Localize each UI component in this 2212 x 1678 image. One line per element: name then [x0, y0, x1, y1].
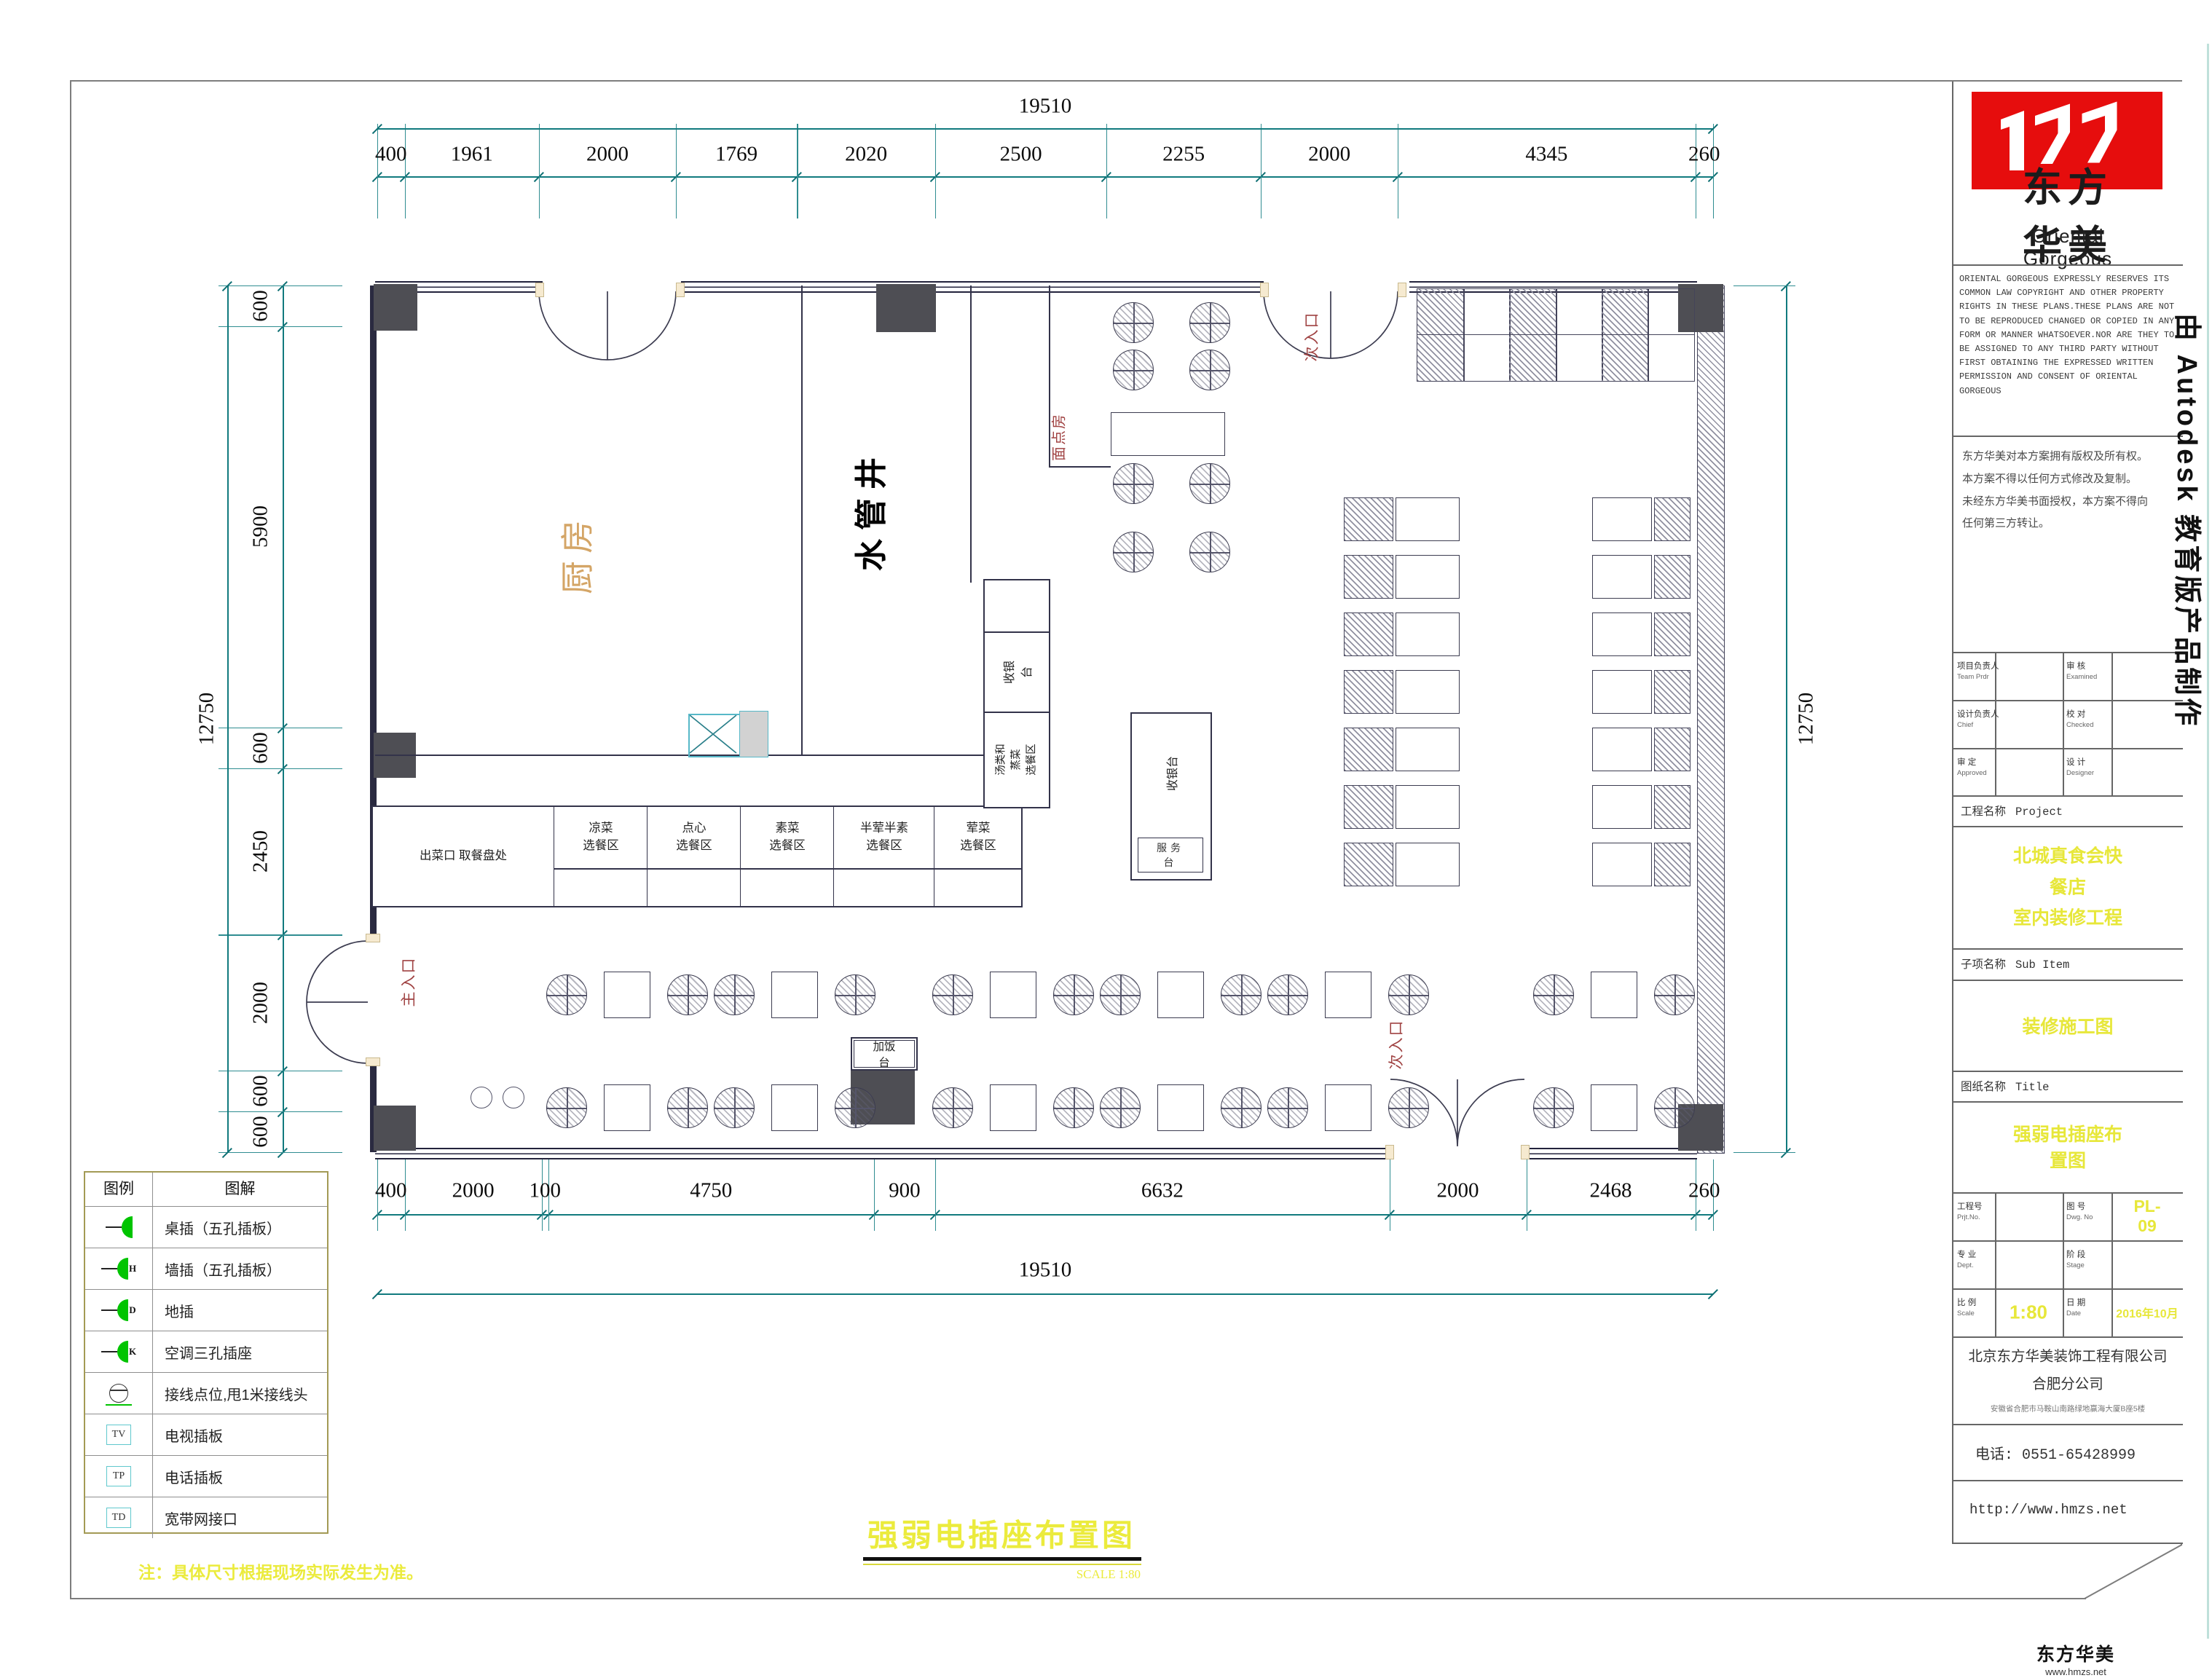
round-chair — [1267, 974, 1308, 1015]
legend-label: 桌插（五孔插板） — [153, 1217, 327, 1238]
legend-row: D地插 — [85, 1289, 327, 1331]
tb-label: 阶 段Stage — [2066, 1250, 2085, 1271]
dim-label: 1769 — [715, 143, 757, 167]
booth-seat — [1654, 670, 1691, 714]
socket-icon: K — [85, 1331, 153, 1372]
sheet-scale-note: SCALE 1:80 — [969, 1567, 1141, 1582]
dim-label: 19510 — [1019, 95, 1072, 119]
serving-cell-divider — [834, 868, 934, 870]
round-chair — [546, 974, 587, 1015]
dim-label: 6632 — [1141, 1179, 1184, 1203]
round-chair — [1113, 302, 1154, 343]
door-jamb — [1521, 1145, 1530, 1159]
dim-extension — [1261, 124, 1262, 218]
table — [1592, 612, 1652, 656]
dim-extension — [539, 124, 540, 218]
company-name: 北京东方华美装饰工程有限公司 — [1968, 1344, 2167, 1366]
legend-row: H墙插（五孔插板） — [85, 1248, 327, 1289]
dim-label: 2500 — [1000, 143, 1042, 167]
legend-label: 宽带网接口 — [153, 1508, 327, 1529]
dim-line — [377, 128, 1713, 130]
booth-seat — [1654, 612, 1691, 656]
box-icon: TV — [85, 1414, 153, 1455]
dim-label: 400 — [375, 143, 407, 167]
junction-icon — [85, 1373, 153, 1414]
booth-seat — [1344, 555, 1393, 599]
box-icon: TD — [85, 1497, 153, 1538]
copyright-chinese: 东方华美对本方案拥有版权及所有权。 本方案不得以任何方式修改及复制。 未经东方华… — [1962, 446, 2175, 535]
door-jamb — [535, 283, 544, 297]
dim-extension — [405, 124, 406, 218]
room-label-kitchen: 厨房 — [551, 513, 599, 594]
dim-extension — [219, 728, 342, 728]
subitem-name: 装修施工图 — [2022, 1012, 2113, 1039]
legend-table: 图例 图解 桌插（五孔插板）H墙插（五孔插板）D地插K空调三孔插座接线点位,甩1… — [84, 1171, 328, 1534]
round-chair — [1189, 350, 1230, 390]
drawing-number: PL-09 — [2130, 1197, 2165, 1236]
dim-label: 260 — [1688, 1179, 1720, 1203]
sheet-name: 强弱电插座布置图 — [2010, 1120, 2125, 1173]
serving-cell-label: 凉菜 选餐区 — [583, 820, 619, 855]
legend-row: 桌插（五孔插板） — [85, 1206, 327, 1248]
shaft-crossed-box — [688, 714, 741, 757]
dim-label: 5900 — [249, 505, 273, 548]
serving-cell-divider — [741, 868, 834, 870]
tb-label: 设 计Designer — [2066, 757, 2094, 779]
cad-drawing-sheet: 厨房 水管井 面点房 次入口 主入口 次入口 出菜口 取餐盘处凉菜 选餐区点心 … — [0, 0, 2212, 1678]
box-icon: TP — [85, 1456, 153, 1497]
round-stool — [471, 1087, 492, 1108]
dim-label: 100 — [530, 1179, 562, 1203]
serving-cell: 素菜 选餐区 — [740, 807, 834, 906]
table — [604, 972, 650, 1018]
dim-extension — [219, 768, 342, 769]
round-chair — [835, 974, 875, 1015]
serving-cell-label: 点心 选餐区 — [676, 820, 712, 855]
dim-label: 2020 — [845, 143, 887, 167]
dim-extension — [1398, 124, 1398, 218]
dim-label: 2000 — [452, 1179, 495, 1203]
dim-extension — [676, 124, 677, 218]
round-chair — [1267, 1087, 1308, 1128]
serving-cell: 荤菜 选餐区 — [934, 807, 1022, 906]
door-arcs-layer — [0, 0, 2212, 1678]
booth-seat — [1654, 728, 1691, 771]
serving-cell: 半荤半素 选餐区 — [833, 807, 934, 906]
dim-extension — [219, 1111, 342, 1112]
serving-cell-label: 半荤半素 选餐区 — [860, 820, 908, 855]
round-chair — [1113, 463, 1154, 504]
round-chair — [835, 1087, 875, 1128]
dim-label: 4750 — [690, 1179, 732, 1203]
dim-line — [227, 285, 229, 1152]
tb-label: 专 业Dept. — [1957, 1250, 1976, 1271]
brand-name-en: Oriental Gorgeous — [2010, 225, 2125, 270]
scale-value: 1:80 — [2010, 1301, 2047, 1324]
table — [1396, 497, 1460, 541]
table — [990, 972, 1036, 1018]
booth-seat — [1344, 843, 1393, 886]
dim-label: 19510 — [1019, 1258, 1072, 1283]
booth-seat — [1654, 785, 1691, 829]
table — [1396, 728, 1460, 771]
booth-seat — [1654, 843, 1691, 886]
door-jamb — [366, 1057, 380, 1066]
cashier-island: 收银台 服务台 — [1130, 712, 1212, 881]
date-value: 2016年10月 — [2116, 1304, 2178, 1321]
round-chair — [932, 974, 973, 1015]
socket-icon: D — [85, 1290, 153, 1331]
company-address: 安徽省合肥市马鞍山南路绿地赢海大厦B座5楼 — [1991, 1403, 2145, 1414]
booth-seat — [1344, 670, 1393, 714]
dim-extension — [1733, 1152, 1795, 1153]
table — [771, 1084, 818, 1131]
legend-label: 墙插（五孔插板） — [153, 1258, 327, 1280]
round-stool — [503, 1087, 524, 1108]
dim-label: 2000 — [249, 982, 273, 1024]
dim-line — [377, 1214, 1713, 1216]
legend-row: TD宽带网接口 — [85, 1497, 327, 1538]
legend-row: 接线点位,甩1米接线头 — [85, 1372, 327, 1414]
rice-station-label: 加饭台 — [868, 1038, 900, 1070]
subitem-label: 子项名称 Sub Item — [1961, 956, 2069, 972]
booth-seat — [1654, 497, 1691, 541]
table — [1396, 555, 1460, 599]
corner-brand-url: www.hmzs.net — [2010, 1666, 2141, 1677]
serving-cell-label: 素菜 选餐区 — [769, 820, 806, 855]
title-underline-black — [863, 1557, 1141, 1561]
round-chair — [1533, 974, 1574, 1015]
dim-extension — [935, 124, 936, 218]
dim-label: 2468 — [1590, 1179, 1632, 1203]
legend-row: TV电视插板 — [85, 1414, 327, 1455]
shaft-gray-box — [739, 711, 768, 757]
dim-extension — [377, 124, 378, 218]
company-phone: 电话: 0551-65428999 — [1975, 1442, 2136, 1464]
round-chair — [1654, 1087, 1695, 1128]
round-chair — [932, 1087, 973, 1128]
round-chair — [1388, 1087, 1429, 1128]
dim-label: 2450 — [249, 830, 273, 873]
round-chair — [667, 1087, 708, 1128]
serving-counter: 出菜口 取餐盘处凉菜 选餐区点心 选餐区素菜 选餐区半荤半素 选餐区荤菜 选餐区 — [371, 805, 1023, 907]
dim-extension — [874, 1159, 875, 1231]
dim-label: 1961 — [451, 143, 493, 167]
round-chair — [1189, 302, 1230, 343]
dim-label: 2000 — [586, 143, 629, 167]
bottom-note: 注：具体尺寸根据现场实际发生为准。 — [138, 1559, 423, 1583]
serving-cell: 出菜口 取餐盘处 — [373, 807, 554, 906]
dim-line — [1786, 285, 1787, 1152]
socket-icon: H — [85, 1248, 153, 1289]
partition — [970, 285, 972, 583]
legend-label: 电话插板 — [153, 1466, 327, 1487]
dim-extension — [1713, 124, 1714, 218]
autodesk-watermark: 由 Autodesk 教育版产品制作 — [2170, 313, 2210, 1224]
door-jamb — [676, 283, 685, 297]
wall-bottom-2 — [1524, 1148, 1697, 1159]
company-website: http://www.hmzs.net — [1969, 1502, 2128, 1518]
dim-label: 2255 — [1162, 143, 1205, 167]
legend-row: K空调三孔插座 — [85, 1331, 327, 1372]
round-chair — [1533, 1087, 1574, 1128]
door-jamb — [1260, 283, 1269, 297]
dim-extension — [1390, 1159, 1390, 1231]
round-chair — [1053, 1087, 1094, 1128]
dim-label: 4345 — [1525, 143, 1567, 167]
round-chair — [1113, 350, 1154, 390]
soup-cashier-counter: 收银台 汤类和蒸菜 选餐区 — [983, 579, 1050, 808]
entrance-label-side-top: 次入口 — [1300, 312, 1322, 362]
wall-bottom-1 — [375, 1148, 1390, 1159]
tb-label: 图 号Dwg. No — [2066, 1202, 2093, 1223]
table — [771, 972, 818, 1018]
dim-extension — [1106, 124, 1107, 218]
table — [1592, 785, 1652, 829]
tb-label: 审 定Approved — [1957, 757, 1987, 779]
dim-label: 2000 — [1437, 1179, 1479, 1203]
booth-seat — [1344, 785, 1393, 829]
round-chair — [1113, 532, 1154, 572]
column — [374, 1106, 416, 1151]
dim-label: 900 — [889, 1179, 921, 1203]
dim-extension — [1733, 285, 1795, 286]
project-label: 工程名称 Project — [1961, 803, 2063, 819]
table — [1592, 728, 1652, 771]
legend-label: 电视插板 — [153, 1425, 327, 1446]
service-desk-label: 服务台 — [1154, 840, 1186, 870]
table — [1591, 1084, 1637, 1131]
legend-label: 接线点位,甩1米接线头 — [153, 1383, 327, 1404]
door-jamb — [366, 934, 380, 942]
table — [1111, 412, 1225, 456]
serving-cell-label: 出菜口 取餐盘处 — [420, 848, 507, 865]
legend-header-symbol: 图例 — [85, 1173, 153, 1206]
table — [1592, 555, 1652, 599]
booth-row — [1417, 288, 1695, 382]
tb-label: 工程号Prjt.No. — [1957, 1202, 1983, 1223]
dim-extension — [935, 1159, 936, 1231]
table — [1592, 670, 1652, 714]
table — [990, 1084, 1036, 1131]
dim-line — [283, 285, 284, 1152]
dim-extension — [219, 1071, 342, 1071]
cashier-counter-label: 收银台 — [999, 656, 1034, 688]
dim-extension — [1527, 1159, 1527, 1231]
booth-seat — [1344, 612, 1393, 656]
sheet-main-title: 强弱电插座布置图 — [867, 1511, 1135, 1556]
copyright-english: ORIENTAL GORGEOUS EXPRESSLY RESERVES ITS… — [1959, 272, 2176, 398]
project-name: 北城真食会快餐店 室内装修工程 — [2010, 840, 2125, 934]
socket-icon — [85, 1207, 153, 1248]
table — [1396, 612, 1460, 656]
table — [1591, 972, 1637, 1018]
sheet-label: 图纸名称 Title — [1961, 1078, 2049, 1094]
dim-extension — [219, 285, 342, 286]
booth-seat — [1344, 497, 1393, 541]
company-branch: 合肥分公司 — [2032, 1372, 2103, 1393]
partition — [375, 755, 985, 756]
tb-label: 比 例Scale — [1957, 1298, 1976, 1319]
title-underline-yellow — [863, 1564, 1141, 1565]
entrance-label-main: 主入口 — [397, 957, 419, 1007]
round-chair — [1189, 463, 1230, 504]
serving-cell-divider — [554, 868, 648, 870]
dim-extension — [219, 1152, 342, 1153]
soup-area-label: 汤类和蒸菜 选餐区 — [993, 744, 1039, 776]
booth-seat — [1344, 728, 1393, 771]
serving-cell-label: 荤菜 选餐区 — [960, 820, 996, 855]
rice-station-box: 加饭台 — [851, 1037, 918, 1071]
partition — [1049, 466, 1111, 468]
column — [374, 284, 417, 331]
corner-brand-name: 东方华美 — [2010, 1640, 2141, 1666]
room-label-pastry: 面点房 — [1047, 413, 1068, 461]
door-jamb — [1398, 283, 1406, 297]
dim-label: 260 — [1688, 143, 1720, 167]
dim-label: 12750 — [195, 693, 219, 746]
corner-brand-stamp: 东方华美 www.hmzs.net — [2010, 1640, 2141, 1677]
table — [604, 1084, 650, 1131]
round-chair — [1221, 1087, 1262, 1128]
entrance-label-side-bottom: 次入口 — [1385, 1020, 1406, 1070]
round-chair — [1053, 974, 1094, 1015]
dim-label: 600 — [249, 1075, 273, 1107]
table — [1396, 670, 1460, 714]
dim-extension — [219, 934, 342, 935]
wall-right-hatched — [1697, 285, 1725, 1154]
wall-top-2 — [681, 281, 1264, 293]
serving-cell-divider — [934, 868, 1022, 870]
dim-label: 400 — [375, 1179, 407, 1203]
title-block: 东方华美 Oriental Gorgeous ORIENTAL GORGEOUS… — [1952, 82, 2183, 1544]
table — [1157, 1084, 1204, 1131]
round-chair — [1100, 1087, 1141, 1128]
dim-line — [377, 176, 1713, 178]
legend-header-desc: 图解 — [153, 1173, 327, 1206]
serving-cell: 点心 选餐区 — [647, 807, 741, 906]
tb-label: 审 核Examined — [2066, 661, 2097, 682]
dim-label: 600 — [249, 290, 273, 322]
dim-label: 600 — [249, 732, 273, 764]
booth-divider — [1417, 334, 1694, 335]
column — [876, 284, 936, 332]
round-chair — [1388, 974, 1429, 1015]
booth-seat — [1654, 555, 1691, 599]
dim-label: 2000 — [1308, 143, 1350, 167]
round-chair — [1100, 974, 1141, 1015]
dim-extension — [797, 124, 798, 218]
table — [1325, 1084, 1371, 1131]
round-chair — [1189, 532, 1230, 572]
round-chair — [714, 1087, 755, 1128]
tb-label: 项目负责人Team Prdr — [1957, 661, 1999, 682]
dim-line — [377, 1293, 1713, 1295]
cashier-island-label: 收银台 — [1162, 756, 1180, 791]
tb-label: 日 期Date — [2066, 1298, 2085, 1319]
door-jamb — [1385, 1145, 1394, 1159]
round-chair — [1654, 974, 1695, 1015]
dim-label: 12750 — [1795, 693, 1819, 746]
tb-label: 设计负责人Chief — [1957, 709, 1999, 730]
legend-label: 地插 — [153, 1300, 327, 1321]
room-label-shaft: 水管井 — [845, 449, 892, 571]
table — [1396, 785, 1460, 829]
serving-cell-divider — [648, 868, 741, 870]
serving-cell: 凉菜 选餐区 — [554, 807, 648, 906]
round-chair — [714, 974, 755, 1015]
dim-extension — [219, 326, 342, 327]
tb-label: 校 对Checked — [2066, 709, 2094, 730]
table — [1157, 972, 1204, 1018]
legend-label: 空调三孔插座 — [153, 1342, 327, 1363]
partition — [801, 285, 803, 755]
dim-label: 600 — [249, 1116, 273, 1148]
round-chair — [1221, 974, 1262, 1015]
table — [1325, 972, 1371, 1018]
table — [1592, 843, 1652, 886]
table — [1592, 497, 1652, 541]
table — [1396, 843, 1460, 886]
round-chair — [667, 974, 708, 1015]
round-chair — [546, 1087, 587, 1128]
dim-extension — [1696, 124, 1696, 218]
legend-row: TP电话插板 — [85, 1455, 327, 1497]
